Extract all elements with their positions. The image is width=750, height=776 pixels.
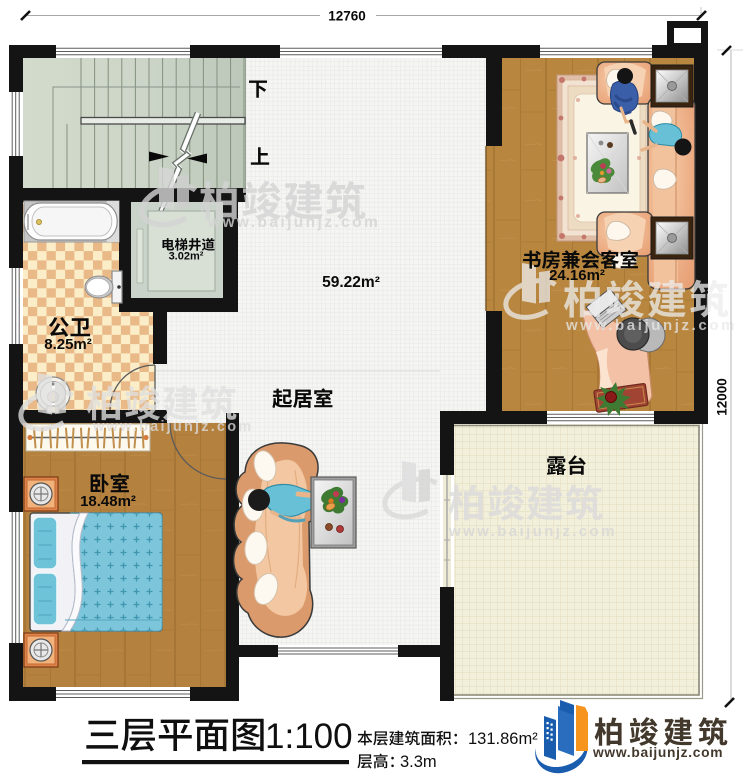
- svg-text:1:100: 1:100: [265, 717, 353, 756]
- svg-text:3.02m²: 3.02m²: [169, 251, 204, 263]
- svg-text:www.baijunjz.com: www.baijunjz.com: [592, 745, 723, 760]
- svg-text:18.48m²: 18.48m²: [80, 493, 136, 510]
- svg-text:3.3m: 3.3m: [400, 753, 437, 771]
- svg-text:www.baijunjz.com: www.baijunjz.com: [448, 523, 617, 540]
- svg-text:24.16m²: 24.16m²: [549, 267, 605, 284]
- svg-text:12760: 12760: [328, 9, 366, 24]
- svg-text:www.baijunjz.com: www.baijunjz.com: [92, 419, 253, 435]
- svg-text:12000: 12000: [715, 378, 730, 416]
- svg-text:8.25m²: 8.25m²: [44, 336, 92, 353]
- svg-text:59.22m²: 59.22m²: [322, 274, 380, 291]
- svg-text:131.86m²: 131.86m²: [468, 730, 538, 748]
- svg-text:www.baijunjz.com: www.baijunjz.com: [207, 214, 380, 231]
- svg-text:www.baijunjz.com: www.baijunjz.com: [565, 317, 737, 334]
